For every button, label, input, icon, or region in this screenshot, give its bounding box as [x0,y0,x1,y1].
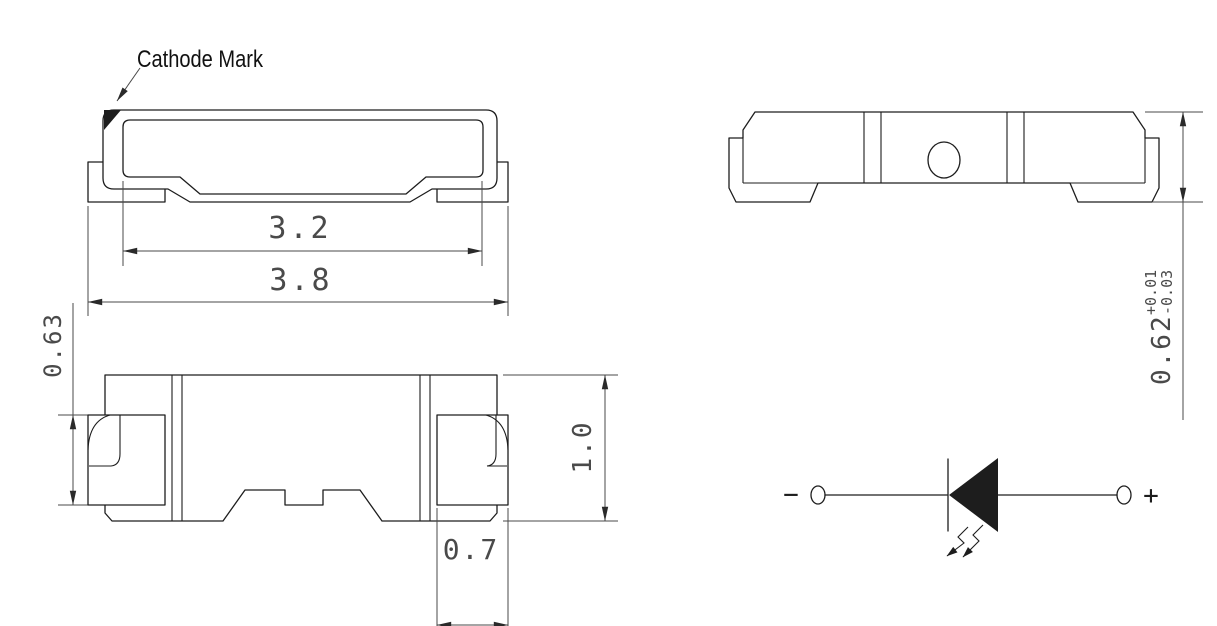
top-view-package-outline [103,110,497,202]
dimension-text-thickness-tol-minus: -0.03 [1158,270,1176,315]
top-view: Cathode Mark [88,46,508,202]
anode-terminal-circle [1117,486,1131,504]
bottom-view-left-pad [88,415,165,505]
cathode-terminal-circle [811,486,825,504]
side-view: 0.62 +0.01 -0.03 [729,112,1203,420]
dimension-text-pad-width: 0.7 [443,533,500,566]
side-view-outline [729,112,1159,202]
cathode-mark-label: Cathode Mark [137,46,264,73]
cathode-polarity-label: − [783,480,799,510]
bottom-view-right-pad [437,415,508,505]
light-emission-arrow [947,527,968,556]
dimension-text-thickness: 0.62 [1147,314,1177,385]
dimension-text-inner-width: 3.2 [268,211,331,246]
dimension-text-lead-height: 0.63 [39,312,67,378]
led-dimension-drawing: Cathode Mark 3.2 3.8 0.63 [0,0,1217,626]
dimension-text-overall-width: 3.8 [269,263,332,298]
led-schematic-symbol: − + [783,458,1159,557]
diode-triangle [949,458,998,532]
anode-polarity-label: + [1143,481,1159,511]
dimension-text-body-height: 1.0 [568,421,598,474]
light-emission-arrow [963,525,983,557]
bottom-view: 1.0 0.7 [88,375,618,626]
